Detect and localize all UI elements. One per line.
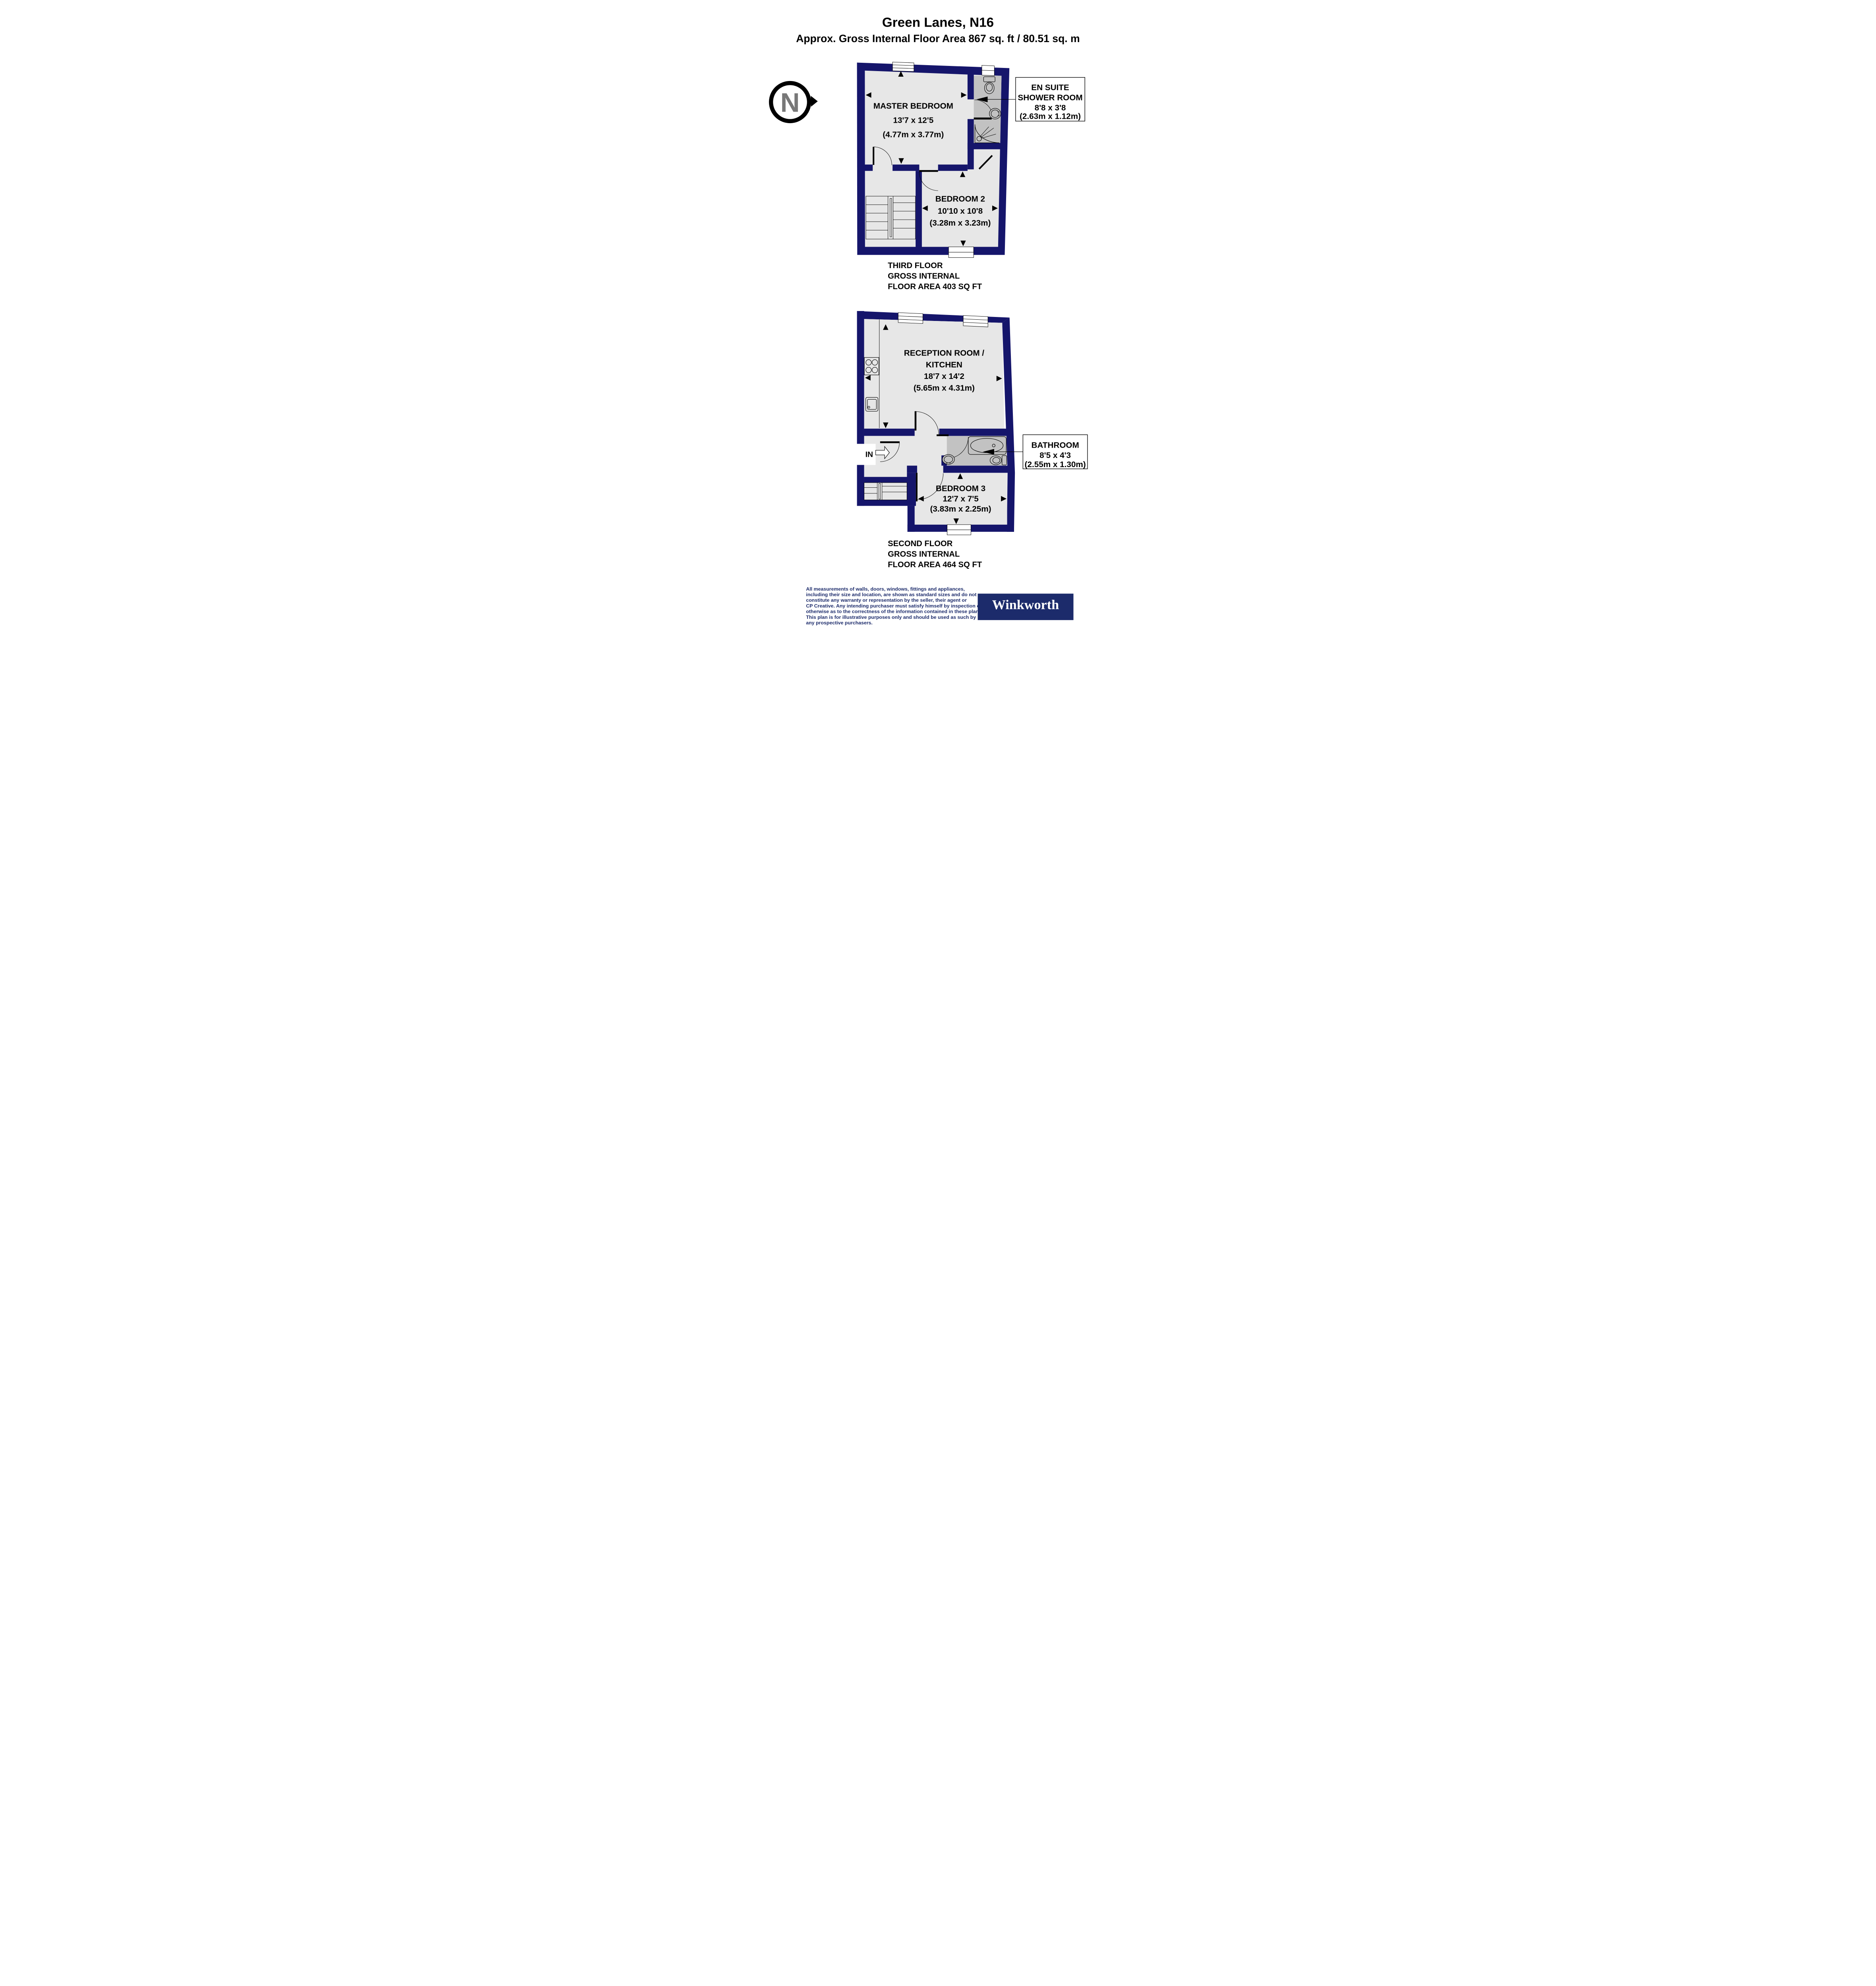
master-bedroom-metric: (4.77m x 3.77m) xyxy=(883,130,944,139)
winkworth-logo-text: Winkworth xyxy=(992,597,1059,612)
ensuite-sink-icon xyxy=(989,108,1001,119)
ensuite-toilet-icon xyxy=(983,77,995,94)
bedroom3-label: BEDROOM 3 xyxy=(936,484,985,493)
second-stairs-floor xyxy=(864,482,907,500)
master-bedroom-imperial: 13'7 x 12'5 xyxy=(893,116,933,125)
kitchen-hob-icon xyxy=(864,357,879,375)
reception-bottom-wall-b xyxy=(939,429,1007,436)
third-floor-caption-1: THIRD FLOOR xyxy=(888,261,943,270)
second-floor-plan: IN BATHROOM 8'5 x 4'3 (2.55m x 1.30m) RE… xyxy=(856,311,1087,569)
reception-metric: (5.65m x 4.31m) xyxy=(914,383,975,392)
ensuite-left-wall-upper xyxy=(968,71,974,99)
bedroom3-imperial: 12'7 x 7'5 xyxy=(943,494,978,503)
hall-bottom-wall-a xyxy=(907,466,917,473)
ensuite-label-name1: EN SUITE xyxy=(1031,83,1069,92)
disclaimer-line-3: constitute any warranty or representatio… xyxy=(806,597,967,603)
bedroom3-window xyxy=(947,525,971,535)
bedroom3-metric: (3.83m x 2.25m) xyxy=(930,504,991,514)
kitchen-sink-icon xyxy=(866,397,878,411)
master-window xyxy=(893,62,914,71)
north-arrow-icon: N xyxy=(771,83,818,121)
bedroom2-imperial: 10'10 x 10'8 xyxy=(938,207,983,216)
page-subtitle: Approx. Gross Internal Floor Area 867 sq… xyxy=(796,33,1080,44)
bedroom2-metric: (3.28m x 3.23m) xyxy=(929,218,991,228)
master-bottom-wall-b xyxy=(893,164,919,171)
master-bottom-wall-c xyxy=(938,164,968,171)
disclaimer-line-2: including their size and location, are s… xyxy=(806,592,976,597)
bathroom-label-imperial: 8'5 x 4'3 xyxy=(1039,451,1071,460)
bathroom-label-name: BATHROOM xyxy=(1031,440,1079,450)
reception-imperial: 18'7 x 14'2 xyxy=(924,372,964,381)
master-bedroom-label: MASTER BEDROOM xyxy=(873,101,953,110)
bedroom2-window xyxy=(949,247,974,257)
ensuite-label-metric: (2.63m x 1.12m) xyxy=(1020,112,1081,121)
reception-window-2 xyxy=(963,315,988,327)
disclaimer-line-1: All measurements of walls, doors, window… xyxy=(806,586,965,592)
stairs-bottom-wall xyxy=(857,500,916,506)
disclaimer-line-5: otherwise as to the correctness of the i… xyxy=(806,609,983,614)
entrance-in-label: IN xyxy=(866,450,873,459)
floorplan-page: Green Lanes, N16 Approx. Gross Internal … xyxy=(727,0,1149,633)
reception-window-1 xyxy=(898,313,923,323)
footer-disclaimer: All measurements of walls, doors, window… xyxy=(806,586,983,626)
master-bottom-wall-a xyxy=(865,164,873,171)
reception-label-2: KITCHEN xyxy=(926,360,962,369)
floorplan-canvas: Green Lanes, N16 Approx. Gross Internal … xyxy=(727,0,1149,633)
reception-bottom-wall-a xyxy=(864,429,915,436)
north-pointer xyxy=(811,96,818,106)
second-floor-caption-3: FLOOR AREA 464 SQ FT xyxy=(888,560,982,569)
bathroom-sink-icon xyxy=(942,454,954,464)
third-floor-caption-3: FLOOR AREA 403 SQ FT xyxy=(888,282,982,291)
ensuite-label-imperial: 8'8 x 3'8 xyxy=(1035,103,1066,112)
second-floor-caption-2: GROSS INTERNAL xyxy=(888,550,960,558)
ensuite-label-name2: SHOWER ROOM xyxy=(1018,93,1082,102)
third-floor-caption-2: GROSS INTERNAL xyxy=(888,272,960,281)
disclaimer-line-7: any prospective purchasers. xyxy=(806,620,873,626)
disclaimer-line-4: CP Creative. Any intending purchaser mus… xyxy=(806,603,981,609)
disclaimer-line-6: This plan is for illustrative purposes o… xyxy=(806,614,976,620)
page-title: Green Lanes, N16 xyxy=(882,15,994,30)
bedroom2-left-wall xyxy=(916,171,922,247)
second-left-wall xyxy=(857,311,864,506)
north-letter: N xyxy=(781,88,800,118)
third-floor-plan: EN SUITE SHOWER ROOM 8'8 x 3'8 (2.63m x … xyxy=(857,62,1085,291)
bathroom-toilet-icon xyxy=(990,456,1007,465)
second-floor-caption-1: SECOND FLOOR xyxy=(888,539,953,548)
bedroom2-label: BEDROOM 2 xyxy=(935,194,985,203)
reception-label-1: RECEPTION ROOM / xyxy=(904,349,985,358)
winkworth-logo: Winkworth xyxy=(978,594,1074,620)
bathroom-label-metric: (2.55m x 1.30m) xyxy=(1025,460,1086,469)
bathroom-bottom-wall xyxy=(943,466,1011,473)
ensuite-bottom-wall xyxy=(968,143,1000,149)
ensuite-window xyxy=(982,65,995,75)
